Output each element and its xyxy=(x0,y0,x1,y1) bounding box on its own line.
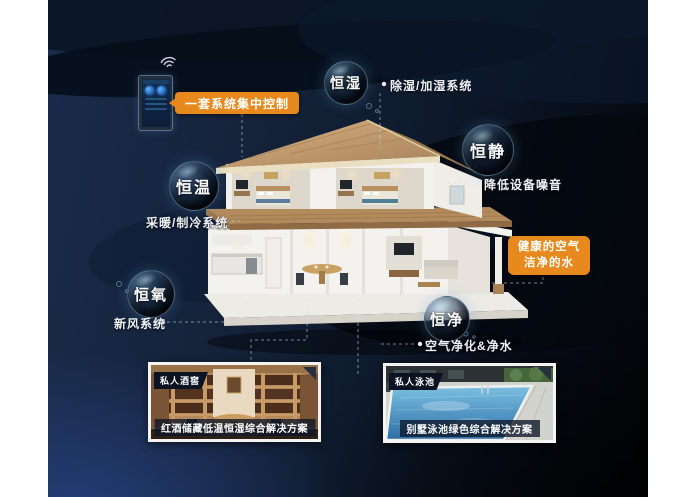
highlight-line1: 健康的空气 xyxy=(512,240,586,256)
corner-fold-icon xyxy=(303,367,316,380)
annotation-dehumidify-system: 除湿/加湿系统 xyxy=(390,77,472,94)
phone-reading-row xyxy=(145,98,167,100)
wine-cellar-card: 私人酒窖 红酒储藏低温恒湿综合解决方案 xyxy=(148,362,321,442)
annotation-heating-cooling: 采暖/制冷系统 xyxy=(146,214,228,231)
phone-dial xyxy=(157,86,166,95)
card-tag: 私人泳池 xyxy=(389,373,443,390)
phone-screen xyxy=(142,79,170,127)
phone-dial xyxy=(145,86,154,95)
bubble-label: 恒静 xyxy=(470,138,506,162)
phone-reading-row xyxy=(145,103,167,105)
card-caption: 红酒储藏低温恒湿综合解决方案 xyxy=(154,419,315,436)
smart-control-panel xyxy=(138,75,173,131)
healthy-air-water-box: 健康的空气 洁净的水 xyxy=(508,236,590,275)
dining-area xyxy=(296,264,348,285)
annotation-fresh-air: 新风系统 xyxy=(114,315,166,332)
pool-card: 私人泳池 别墅泳池绿色综合解决方案 xyxy=(383,363,556,443)
bubble-label: 恒净 xyxy=(430,309,464,330)
bubble-constant-humidity: 恒湿 xyxy=(324,61,368,105)
phone-reading-row xyxy=(145,108,167,110)
card-caption: 别墅泳池绿色综合解决方案 xyxy=(400,420,540,437)
highlight-line2: 洁净的水 xyxy=(512,256,586,272)
bubble-constant-purity: 恒净 xyxy=(424,296,470,342)
house-base xyxy=(204,292,528,326)
card-tag: 私人酒窖 xyxy=(154,372,208,389)
bubble-constant-temperature: 恒温 xyxy=(169,161,219,211)
bubble-label: 恒温 xyxy=(176,174,212,198)
phone-titlebar xyxy=(143,80,169,84)
gable-window xyxy=(450,186,464,204)
bubble-label: 恒湿 xyxy=(330,73,362,93)
annotation-noise-reduction: 降低设备噪音 xyxy=(484,176,562,193)
smart-home-infographic: 一套系统集中控制 恒湿 恒静 恒温 恒氧 恒净 除湿/加湿系统 降低设备噪音 采… xyxy=(0,0,700,497)
house-lower-floor xyxy=(208,225,490,294)
bubble-constant-oxygen: 恒氧 xyxy=(127,270,175,318)
wifi-icon xyxy=(160,53,178,68)
bubble-label: 恒氧 xyxy=(134,284,168,305)
central-control-label: 一套系统集中控制 xyxy=(175,92,299,114)
bubble-constant-quiet: 恒静 xyxy=(462,124,514,176)
corner-fold-icon xyxy=(538,368,551,381)
annotation-air-water-purification: 空气净化&净水 xyxy=(425,337,513,354)
